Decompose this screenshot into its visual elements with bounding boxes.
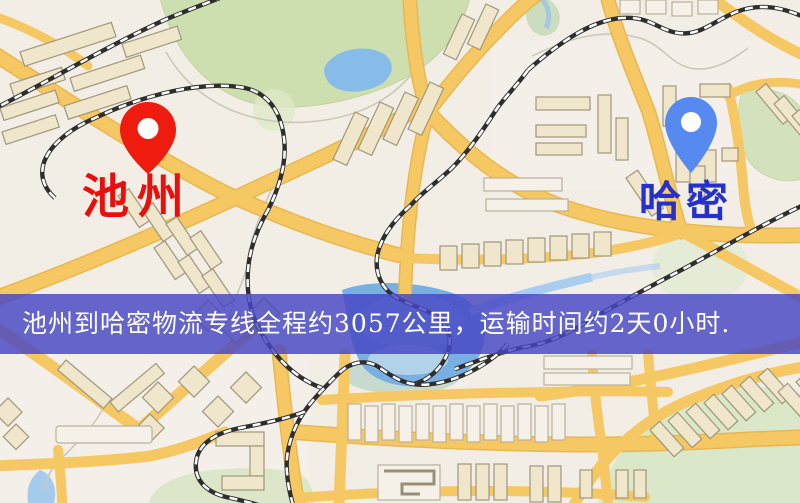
origin-pin-icon bbox=[119, 101, 177, 175]
route-banner-text: 池州到哈密物流专线全程约3057公里，运输时间约2天0小时. bbox=[22, 294, 730, 354]
map-screenshot: 池州 哈密 池州到哈密物流专线全程约3057公里，运输时间约2天0小时. bbox=[0, 0, 800, 503]
destination-label: 哈密 bbox=[639, 181, 733, 223]
destination-pin-shape bbox=[665, 97, 717, 173]
destination-pin-icon bbox=[664, 96, 718, 174]
origin-label: 池州 bbox=[82, 174, 192, 221]
origin-pin-hole bbox=[138, 118, 159, 139]
map-canvas bbox=[0, 0, 800, 503]
destination-pin-hole bbox=[681, 112, 701, 132]
route-banner: 池州到哈密物流专线全程约3057公里，运输时间约2天0小时. bbox=[0, 294, 800, 354]
